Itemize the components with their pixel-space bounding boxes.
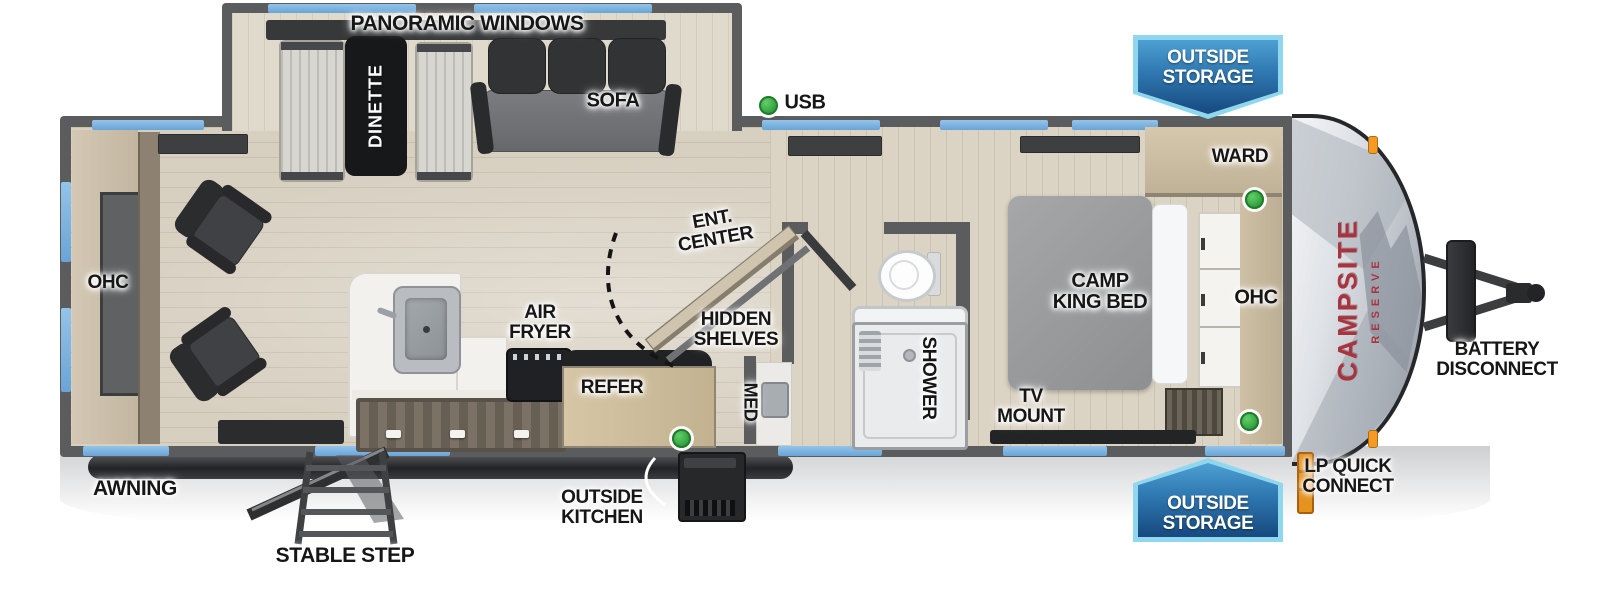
window bbox=[940, 120, 1048, 130]
hitch-a-frame bbox=[1424, 258, 1545, 327]
panoramic-windows-label: PANORAMIC WINDOWS bbox=[350, 13, 583, 35]
awning-label: AWNING bbox=[93, 478, 177, 500]
tv-mount-label: TV MOUNT bbox=[997, 387, 1065, 427]
bench-endcap bbox=[281, 42, 343, 50]
tv-mount-rail bbox=[990, 430, 1196, 444]
shower-pan bbox=[852, 322, 968, 450]
kitchen-sink bbox=[393, 286, 461, 374]
med-sink bbox=[761, 382, 789, 418]
air-fryer-line2: FRYER bbox=[509, 323, 571, 343]
drawer-handle bbox=[514, 430, 529, 438]
outside-kitchen-line1: OUTSIDE bbox=[561, 488, 643, 508]
window bbox=[1003, 446, 1107, 456]
usb-dot bbox=[672, 429, 691, 448]
lp-quick-connect-label: LP QUICK CONNECT bbox=[1302, 457, 1393, 497]
battery-disconnect-label: BATTERY DISCONNECT bbox=[1436, 340, 1558, 380]
shelf-divider bbox=[1200, 326, 1242, 328]
bed-foot-dresser bbox=[1165, 388, 1223, 436]
shower-label: SHOWER bbox=[918, 336, 938, 419]
window bbox=[83, 446, 169, 456]
shelf-handle bbox=[1201, 238, 1205, 250]
sink-drain bbox=[423, 326, 430, 333]
shelf-divider bbox=[1200, 268, 1242, 270]
lp-line1: LP QUICK bbox=[1302, 457, 1393, 477]
sofa-label: SOFA bbox=[587, 90, 640, 111]
usb-label: USB bbox=[784, 92, 825, 113]
stable-step-label: STABLE STEP bbox=[276, 545, 415, 567]
bench-endcap bbox=[417, 172, 471, 180]
outside-storage-label: OUTSIDE STORAGE bbox=[1163, 48, 1254, 88]
bed-line2: KING BED bbox=[1053, 292, 1148, 313]
camp-king-bed-label: CAMP KING BED bbox=[1053, 271, 1148, 313]
burner-knobs bbox=[513, 354, 565, 360]
badge-line1: OUTSIDE bbox=[1163, 494, 1254, 514]
dinette-bench bbox=[415, 42, 473, 182]
roof-vent bbox=[158, 134, 248, 154]
rear-cabinet-pillar bbox=[138, 132, 160, 444]
marker-light bbox=[1368, 136, 1378, 154]
outside-storage-badge-bottom: OUTSIDE STORAGE bbox=[1133, 458, 1283, 542]
griddle-ribs bbox=[685, 500, 735, 516]
battery-line1: BATTERY bbox=[1436, 340, 1558, 360]
shelf-handle bbox=[1201, 294, 1205, 306]
air-fryer-line1: AIR bbox=[509, 303, 571, 323]
brand-name: CAMPSITE bbox=[1334, 218, 1363, 382]
rear-ohc-label: OHC bbox=[87, 273, 128, 293]
bed-line1: CAMP bbox=[1053, 271, 1148, 292]
window bbox=[92, 120, 204, 130]
drawer-handle bbox=[386, 430, 401, 438]
hidden-shelves-label: HIDDEN SHELVES bbox=[694, 310, 778, 350]
drawer-handle bbox=[450, 430, 465, 438]
badge-line2: STORAGE bbox=[1163, 68, 1254, 88]
med-label: MED bbox=[740, 383, 759, 422]
roof-vent bbox=[788, 136, 882, 156]
brand-series: RESERVE bbox=[1371, 256, 1383, 343]
window bbox=[1205, 446, 1285, 456]
rear-tv-panel bbox=[100, 192, 142, 396]
marker-light bbox=[1368, 430, 1378, 448]
window bbox=[61, 182, 71, 262]
sofa-back-cushion bbox=[488, 38, 546, 94]
refer-label: REFER bbox=[581, 378, 643, 398]
bathroom-wall bbox=[782, 222, 794, 364]
badge-line2: STORAGE bbox=[1163, 514, 1254, 534]
outside-kitchen-griddle bbox=[678, 452, 746, 522]
dinette-bench bbox=[279, 40, 345, 182]
floorplan-canvas: DINETTE bbox=[0, 0, 1600, 602]
usb-dot bbox=[1245, 190, 1264, 209]
ward-label: WARD bbox=[1212, 147, 1268, 167]
usb-legend-dot bbox=[759, 96, 778, 115]
window bbox=[61, 308, 71, 392]
tv-mount-line2: MOUNT bbox=[997, 407, 1065, 427]
bedroom-ohc-cabinet bbox=[1240, 192, 1282, 444]
tv-mount-line1: TV bbox=[997, 387, 1065, 407]
air-fryer-label: AIR FRYER bbox=[509, 303, 571, 343]
bench-endcap bbox=[417, 44, 471, 52]
shower-head-icon bbox=[859, 331, 881, 371]
usb-dot bbox=[1240, 412, 1259, 431]
dinette-label: DINETTE bbox=[366, 64, 385, 148]
lp-line2: CONNECT bbox=[1302, 477, 1393, 497]
bed-pillows bbox=[1152, 204, 1188, 384]
outside-storage-badge-top: OUTSIDE STORAGE bbox=[1133, 35, 1283, 119]
bench-endcap bbox=[281, 172, 343, 180]
outside-kitchen-label: OUTSIDE KITCHEN bbox=[561, 488, 643, 528]
window bbox=[762, 120, 880, 130]
kitchen-lower-cabinet bbox=[356, 398, 566, 452]
outside-kitchen-line2: KITCHEN bbox=[561, 508, 643, 528]
sofa-back-cushion bbox=[548, 38, 606, 94]
shelf-handle bbox=[1201, 352, 1205, 364]
toilet-seat-ring bbox=[889, 260, 919, 290]
sofa-seat bbox=[484, 90, 670, 152]
roof-vent bbox=[1020, 136, 1140, 153]
hidden-shelves-line1: HIDDEN bbox=[694, 310, 778, 330]
sofa-back-cushion bbox=[608, 38, 666, 94]
battery-disconnect-box bbox=[1446, 240, 1476, 342]
outside-storage-label: OUTSIDE STORAGE bbox=[1163, 494, 1254, 534]
griddle-top-band bbox=[684, 458, 736, 468]
battery-line2: DISCONNECT bbox=[1436, 360, 1558, 380]
rear-console bbox=[218, 420, 344, 444]
shower-drain bbox=[903, 349, 916, 362]
badge-line1: OUTSIDE bbox=[1163, 48, 1254, 68]
hidden-shelves-line2: SHELVES bbox=[694, 330, 778, 350]
toilet-bowl bbox=[878, 250, 936, 302]
bedroom-ohc-label: OHC bbox=[1234, 287, 1277, 308]
